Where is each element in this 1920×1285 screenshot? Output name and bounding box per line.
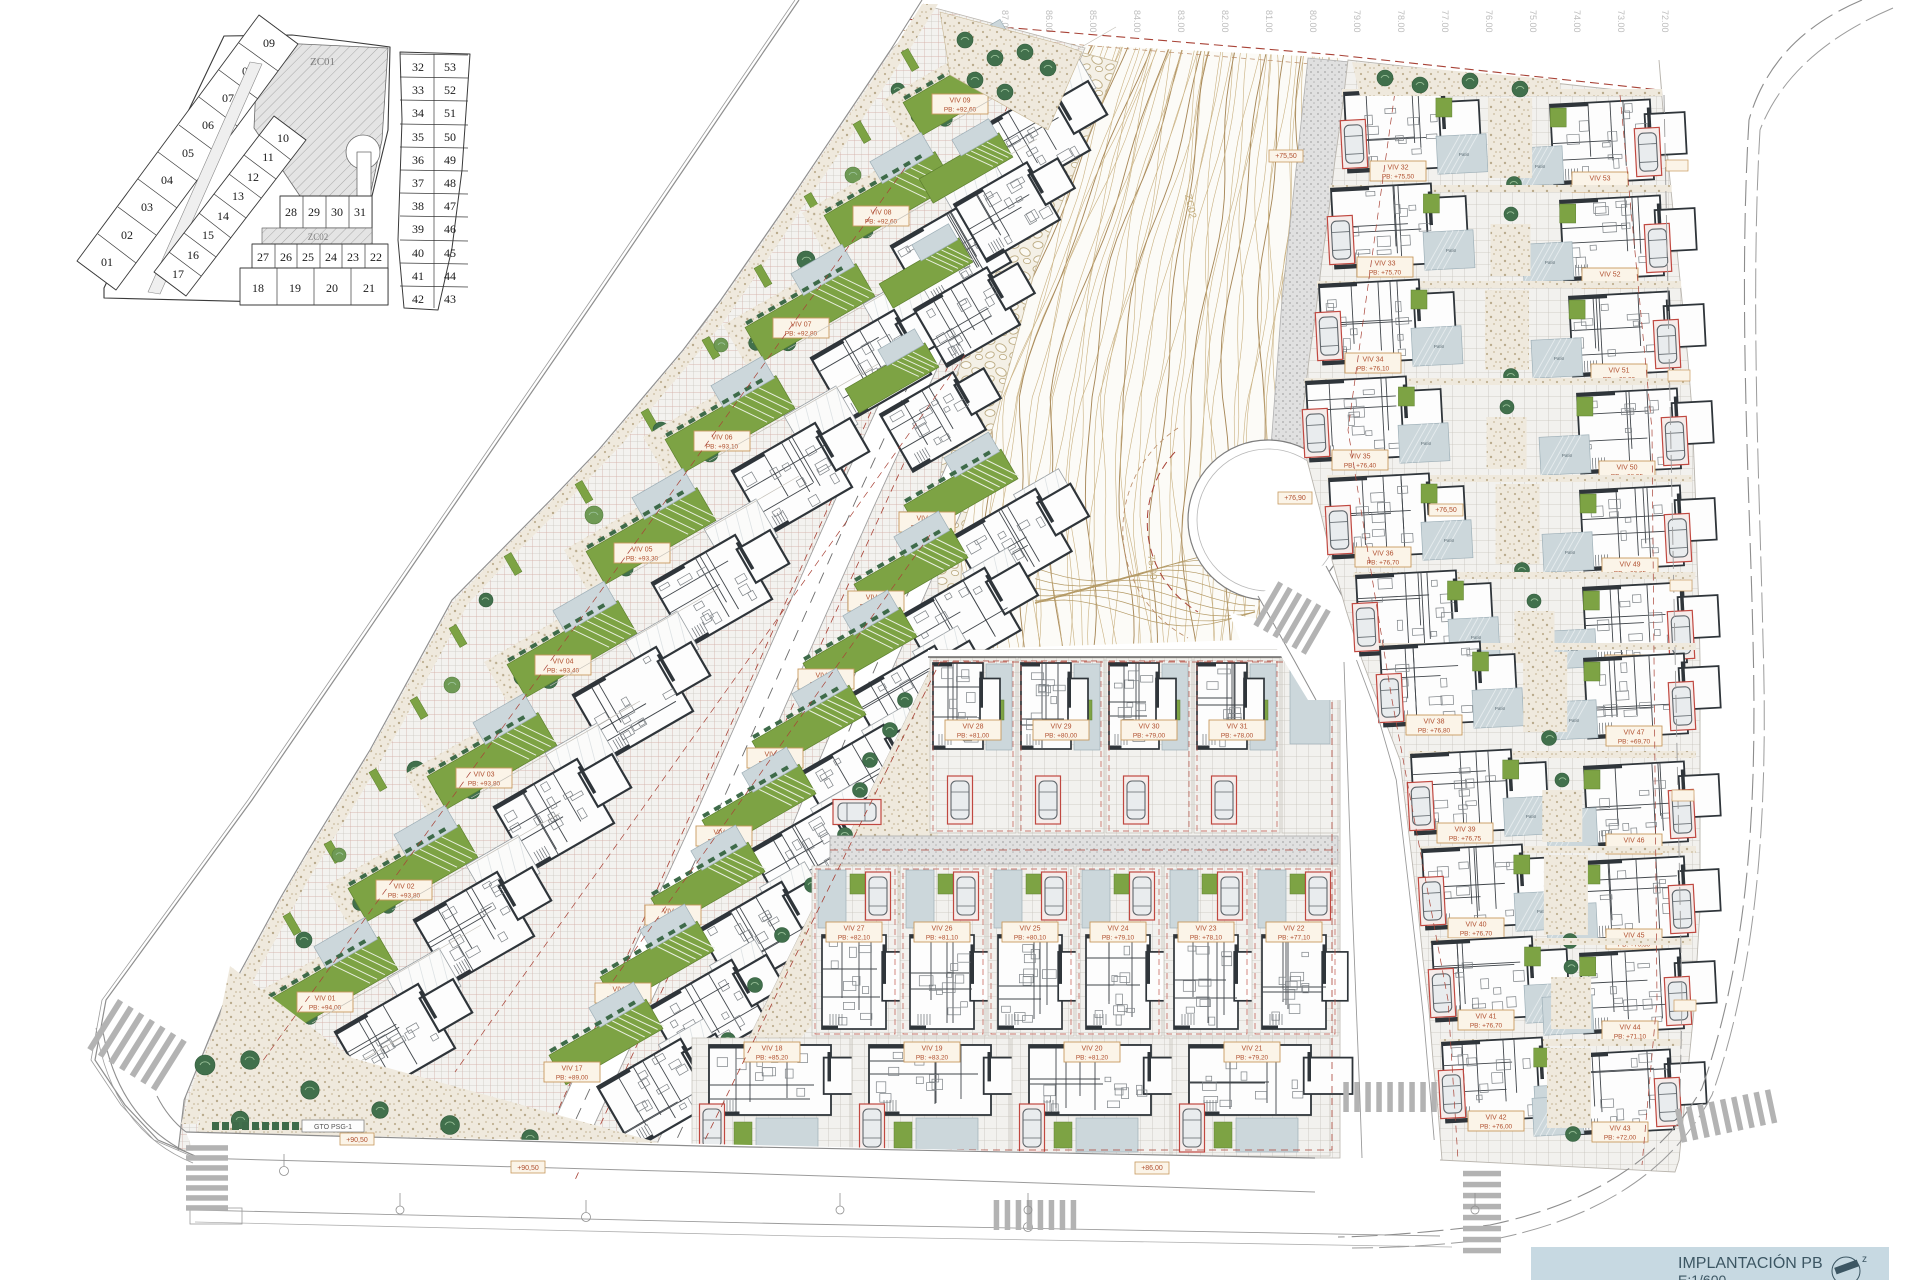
- svg-text:81.00: 81.00: [1264, 10, 1274, 33]
- svg-text:VIV 30: VIV 30: [1138, 724, 1159, 731]
- svg-text:PB: +76,70: PB: +76,70: [1367, 560, 1400, 567]
- svg-text:05: 05: [182, 146, 194, 160]
- svg-text:VIV 32: VIV 32: [1387, 165, 1408, 172]
- svg-text:21: 21: [363, 281, 375, 295]
- svg-text:PB: +79,10: PB: +79,10: [1102, 935, 1135, 942]
- svg-text:+90,50: +90,50: [517, 1165, 539, 1172]
- svg-text:25: 25: [302, 250, 314, 264]
- svg-text:85.00: 85.00: [1088, 10, 1098, 33]
- svg-text:75.00: 75.00: [1145, 554, 1158, 580]
- svg-text:42: 42: [412, 292, 424, 306]
- svg-text:VIV 34: VIV 34: [1362, 357, 1383, 364]
- svg-text:Patio: Patio: [1554, 356, 1565, 362]
- svg-text:IMPLANTACIÓN PB: IMPLANTACIÓN PB: [1678, 1253, 1823, 1272]
- svg-text:73.00: 73.00: [1616, 10, 1626, 33]
- svg-text:41: 41: [412, 269, 424, 283]
- svg-text:PB: +79,20: PB: +79,20: [1236, 1055, 1269, 1062]
- svg-text:VIV 40: VIV 40: [1465, 922, 1486, 929]
- svg-text:+90,50: +90,50: [346, 1137, 368, 1144]
- svg-text:VIV 39: VIV 39: [1454, 827, 1475, 834]
- svg-text:PB: +76,75: PB: +76,75: [1449, 836, 1482, 843]
- svg-text:PB: +76,00: PB: +76,00: [1480, 1124, 1513, 1131]
- svg-text:04: 04: [161, 173, 173, 187]
- svg-text:24: 24: [325, 250, 337, 264]
- svg-text:Patio: Patio: [1569, 718, 1580, 724]
- svg-text:43: 43: [444, 292, 456, 306]
- svg-text:Patio: Patio: [1535, 164, 1546, 170]
- svg-text:77.00: 77.00: [1440, 10, 1450, 33]
- svg-text:PB: +72,00: PB: +72,00: [1604, 1135, 1637, 1142]
- svg-text:PB: +76,70: PB: +76,70: [1460, 931, 1493, 938]
- svg-text:VIV 04: VIV 04: [552, 659, 573, 666]
- svg-text:VIV 19: VIV 19: [921, 1046, 942, 1053]
- svg-text:VIV 28: VIV 28: [962, 724, 983, 731]
- svg-text:+76,90: +76,90: [1284, 495, 1306, 502]
- svg-text:VIV 51: VIV 51: [1608, 368, 1629, 375]
- svg-text:PB: +81,20: PB: +81,20: [1076, 1055, 1109, 1062]
- svg-text:VIV 49: VIV 49: [1619, 562, 1640, 569]
- svg-text:PB: +76,10: PB: +76,10: [1357, 366, 1390, 373]
- svg-text:VIV 29: VIV 29: [1050, 724, 1071, 731]
- svg-text:12: 12: [247, 170, 259, 184]
- svg-text:VIV 08: VIV 08: [870, 210, 891, 217]
- svg-text:17: 17: [172, 267, 184, 281]
- svg-text:VIV 43: VIV 43: [1609, 1126, 1630, 1133]
- svg-text:Patio: Patio: [1421, 441, 1432, 447]
- svg-text:78.00: 78.00: [1396, 10, 1406, 33]
- svg-text:VIV 42: VIV 42: [1485, 1115, 1506, 1122]
- svg-text:PB: +85,20: PB: +85,20: [756, 1055, 789, 1062]
- svg-text:VIV 33: VIV 33: [1374, 261, 1395, 268]
- svg-text:z: z: [1862, 1254, 1867, 1265]
- svg-text:PB: +81,10: PB: +81,10: [926, 935, 959, 942]
- svg-text:Patio: Patio: [1471, 635, 1482, 641]
- svg-text:PB: +89,00: PB: +89,00: [556, 1075, 589, 1082]
- svg-text:VIV 24: VIV 24: [1107, 926, 1128, 933]
- svg-text:PB: +78,00: PB: +78,00: [1221, 733, 1254, 740]
- svg-text:45: 45: [444, 246, 456, 260]
- svg-text:31: 31: [354, 205, 366, 219]
- svg-text:Patio: Patio: [1444, 538, 1455, 544]
- svg-text:20: 20: [326, 281, 338, 295]
- svg-text:86.00: 86.00: [1044, 10, 1054, 33]
- svg-text:PB: +92,60: PB: +92,60: [944, 107, 977, 114]
- svg-text:Patio: Patio: [1526, 814, 1537, 820]
- svg-text:ZC02: ZC02: [308, 232, 329, 242]
- svg-text:Patio: Patio: [1446, 248, 1457, 254]
- svg-text:11: 11: [262, 150, 274, 164]
- svg-text:VIV 46: VIV 46: [1623, 838, 1644, 845]
- svg-text:49: 49: [444, 153, 456, 167]
- svg-text:10: 10: [277, 131, 289, 145]
- svg-text:76.00: 76.00: [1484, 10, 1494, 33]
- svg-text:VIV 44: VIV 44: [1619, 1025, 1640, 1032]
- svg-text:06: 06: [202, 118, 214, 132]
- svg-text:VIV 52: VIV 52: [1599, 272, 1620, 279]
- svg-text:VIV 07: VIV 07: [790, 322, 811, 329]
- svg-text:74.00: 74.00: [1572, 10, 1582, 33]
- svg-text:50: 50: [444, 130, 456, 144]
- svg-text:28: 28: [285, 205, 297, 219]
- svg-text:03: 03: [141, 200, 153, 214]
- svg-text:14: 14: [217, 209, 229, 223]
- svg-text:Patio: Patio: [1459, 152, 1470, 158]
- svg-text:VIV 18: VIV 18: [761, 1046, 782, 1053]
- svg-text:PB: +82,10: PB: +82,10: [838, 935, 871, 942]
- svg-text:E:1/600: E:1/600: [1678, 1272, 1726, 1280]
- svg-text:VIV 05: VIV 05: [631, 547, 652, 554]
- svg-text:VIV 50: VIV 50: [1616, 465, 1637, 472]
- svg-text:VIV 01: VIV 01: [314, 996, 335, 1003]
- svg-text:GTO PSG-1: GTO PSG-1: [314, 1124, 352, 1131]
- svg-text:02: 02: [121, 228, 133, 242]
- svg-text:47: 47: [444, 199, 456, 213]
- svg-text:PB: +80,10: PB: +80,10: [1014, 935, 1047, 942]
- svg-text:PB: +83,20: PB: +83,20: [916, 1055, 949, 1062]
- svg-text:83.00: 83.00: [1176, 10, 1186, 33]
- svg-text:22: 22: [370, 250, 382, 264]
- svg-text:35: 35: [412, 130, 424, 144]
- svg-text:VIV 47: VIV 47: [1623, 730, 1644, 737]
- svg-text:19: 19: [289, 281, 301, 295]
- svg-text:09: 09: [263, 36, 275, 50]
- svg-text:PB: +93,30: PB: +93,30: [626, 556, 659, 563]
- svg-text:38: 38: [412, 199, 424, 213]
- svg-text:32: 32: [412, 60, 424, 74]
- svg-text:44: 44: [444, 269, 456, 283]
- svg-text:VIV 09: VIV 09: [949, 98, 970, 105]
- svg-text:33: 33: [412, 83, 424, 97]
- svg-text:VIV 23: VIV 23: [1195, 926, 1216, 933]
- svg-text:VIV 36: VIV 36: [1372, 551, 1393, 558]
- svg-text:79.00: 79.00: [1352, 10, 1362, 33]
- svg-text:84.00: 84.00: [1132, 10, 1142, 33]
- svg-text:+86,00: +86,00: [1141, 1165, 1163, 1172]
- svg-text:23: 23: [347, 250, 359, 264]
- svg-text:PB: +92,60: PB: +92,60: [865, 219, 898, 226]
- svg-text:Patio: Patio: [1545, 260, 1556, 266]
- svg-text:29: 29: [308, 205, 320, 219]
- svg-text:26: 26: [280, 250, 292, 264]
- svg-text:VIV 53: VIV 53: [1589, 176, 1610, 183]
- svg-text:PB: +92,80: PB: +92,80: [785, 331, 818, 338]
- svg-text:75.00: 75.00: [1528, 10, 1538, 33]
- svg-text:13: 13: [232, 189, 244, 203]
- svg-text:VIV 20: VIV 20: [1081, 1046, 1102, 1053]
- svg-text:Patio: Patio: [1562, 453, 1573, 459]
- svg-text:27: 27: [257, 250, 269, 264]
- svg-text:VIV 27: VIV 27: [843, 926, 864, 933]
- svg-text:VIV 38: VIV 38: [1423, 719, 1444, 726]
- svg-text:15: 15: [202, 228, 214, 242]
- svg-text:PB: +80,00: PB: +80,00: [1045, 733, 1078, 740]
- svg-text:VIV 17: VIV 17: [561, 1066, 582, 1073]
- svg-text:+76,50: +76,50: [1435, 507, 1457, 514]
- svg-text:PB: +75,50: PB: +75,50: [1382, 174, 1415, 181]
- svg-text:80.00: 80.00: [1308, 10, 1318, 33]
- svg-text:Patio: Patio: [1495, 706, 1506, 712]
- svg-text:VIV 21: VIV 21: [1241, 1046, 1262, 1053]
- svg-text:37: 37: [412, 176, 424, 190]
- svg-text:PB: +77,10: PB: +77,10: [1278, 935, 1311, 942]
- svg-text:PB: +79,00: PB: +79,00: [1133, 733, 1166, 740]
- svg-text:PB: +78,10: PB: +78,10: [1190, 935, 1223, 942]
- svg-text:PB: +94,00: PB: +94,00: [309, 1005, 342, 1012]
- svg-text:VIV 41: VIV 41: [1475, 1014, 1496, 1021]
- svg-text:48: 48: [444, 176, 456, 190]
- svg-text:46: 46: [444, 222, 456, 236]
- svg-text:52: 52: [444, 83, 456, 97]
- svg-text:72.00: 72.00: [1660, 10, 1670, 33]
- svg-text:PB: +75,70: PB: +75,70: [1369, 270, 1402, 277]
- svg-text:VIV 02: VIV 02: [393, 884, 414, 891]
- svg-text:VIV 22: VIV 22: [1283, 926, 1304, 933]
- svg-text:VIV 26: VIV 26: [931, 926, 952, 933]
- svg-text:40: 40: [412, 246, 424, 260]
- svg-text:PB: +81,00: PB: +81,00: [957, 733, 990, 740]
- svg-text:36: 36: [412, 153, 424, 167]
- svg-text:53: 53: [444, 60, 456, 74]
- svg-text:18: 18: [252, 281, 264, 295]
- svg-text:PB: +76,80: PB: +76,80: [1418, 728, 1451, 735]
- svg-text:PB: +76,70: PB: +76,70: [1470, 1023, 1503, 1030]
- svg-text:34: 34: [412, 106, 424, 120]
- svg-text:PB: +93,40: PB: +93,40: [547, 668, 580, 675]
- svg-text:39: 39: [412, 222, 424, 236]
- svg-text:PB: +69,70: PB: +69,70: [1618, 739, 1651, 746]
- svg-text:VIV 03: VIV 03: [473, 772, 494, 779]
- svg-text:+75,50: +75,50: [1275, 153, 1297, 160]
- svg-text:01: 01: [101, 255, 113, 269]
- svg-text:82.00: 82.00: [1220, 10, 1230, 33]
- svg-text:VIV 31: VIV 31: [1226, 724, 1247, 731]
- svg-text:51: 51: [444, 106, 456, 120]
- svg-text:16: 16: [187, 248, 199, 262]
- svg-text:PB: +76,40: PB: +76,40: [1344, 463, 1377, 470]
- svg-text:ZC01: ZC01: [310, 56, 335, 68]
- svg-text:Patio: Patio: [1434, 344, 1445, 350]
- svg-text:VIV 25: VIV 25: [1019, 926, 1040, 933]
- svg-text:VIV 06: VIV 06: [711, 435, 732, 442]
- svg-text:30: 30: [331, 205, 343, 219]
- svg-text:Patio: Patio: [1565, 550, 1576, 556]
